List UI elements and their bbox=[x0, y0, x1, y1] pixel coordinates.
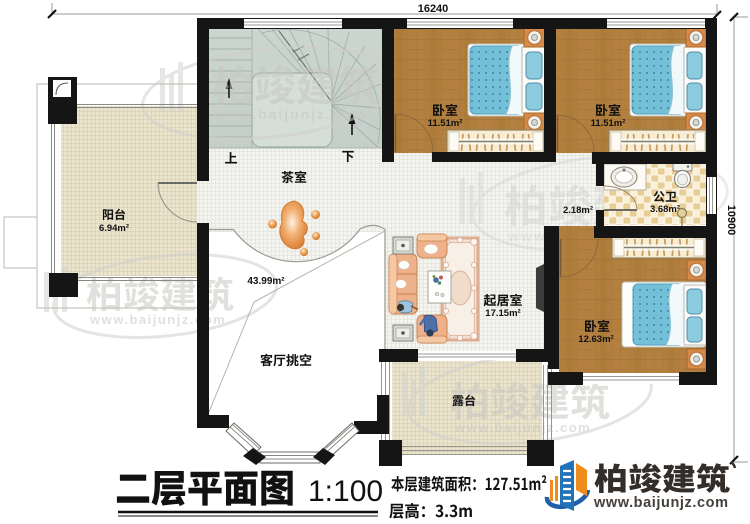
svg-text:2.18m²: 2.18m² bbox=[563, 205, 593, 216]
svg-text:10900: 10900 bbox=[725, 205, 737, 236]
svg-text:1:100: 1:100 bbox=[308, 475, 383, 508]
svg-text:www.baijunjz.com: www.baijunjz.com bbox=[213, 106, 367, 122]
svg-text:www.baijunjz.com: www.baijunjz.com bbox=[454, 420, 591, 435]
svg-text:43.99m²: 43.99m² bbox=[247, 276, 285, 287]
svg-text:3.68m²: 3.68m² bbox=[650, 204, 680, 215]
svg-text:17.15m²: 17.15m² bbox=[485, 308, 520, 319]
svg-text:12.63m²: 12.63m² bbox=[578, 334, 613, 345]
svg-text:www.baijunjz.com: www.baijunjz.com bbox=[593, 495, 728, 511]
svg-text:6.94m²: 6.94m² bbox=[99, 223, 129, 234]
svg-text:11.51m²: 11.51m² bbox=[591, 118, 626, 129]
svg-text:11.51m²: 11.51m² bbox=[428, 118, 463, 129]
svg-text:16240: 16240 bbox=[418, 3, 449, 15]
